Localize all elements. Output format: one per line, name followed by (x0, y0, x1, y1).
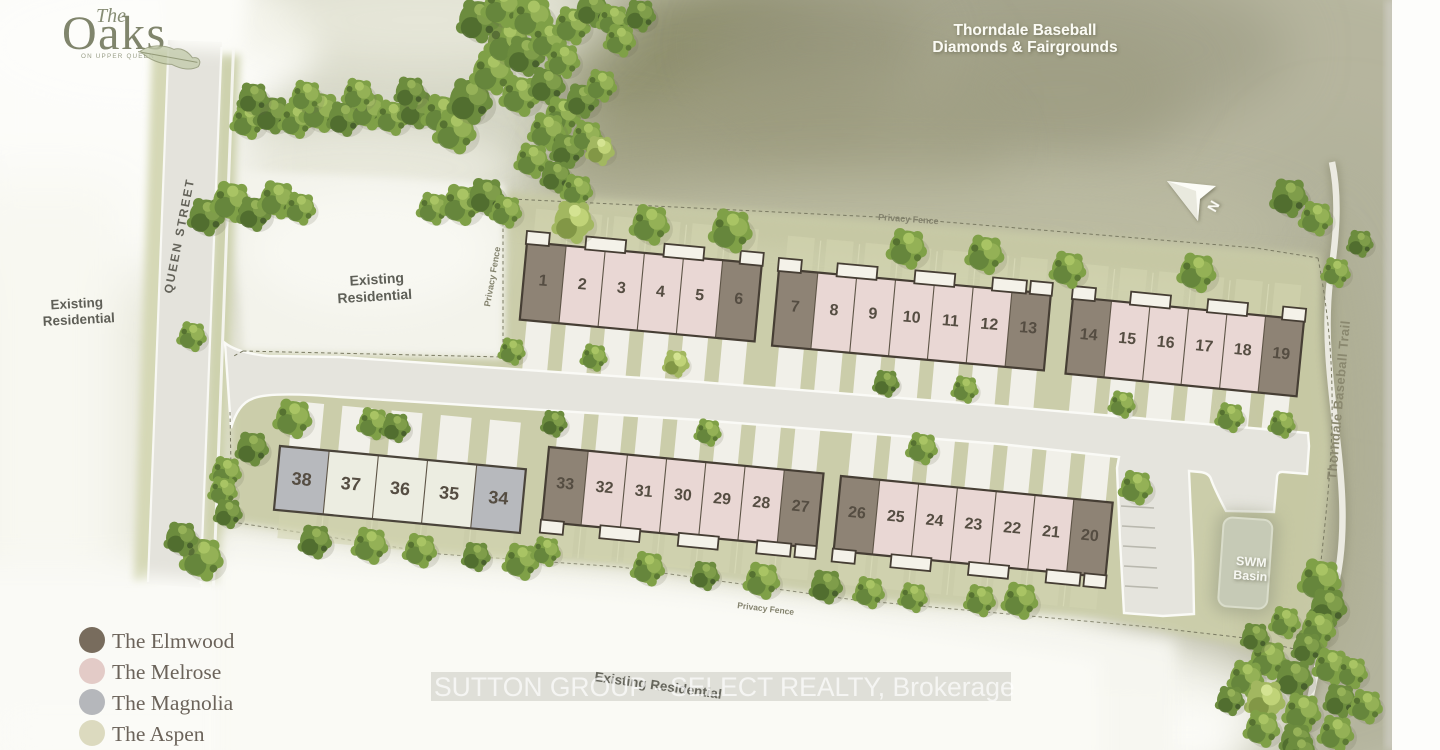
svg-text:25: 25 (886, 508, 905, 527)
svg-text:1: 1 (538, 272, 549, 290)
svg-text:20: 20 (1080, 527, 1099, 546)
svg-text:11: 11 (941, 312, 959, 330)
svg-text:21: 21 (1041, 523, 1060, 542)
svg-text:15: 15 (1117, 330, 1136, 349)
svg-text:18: 18 (1233, 341, 1252, 360)
svg-text:31: 31 (634, 482, 653, 501)
svg-text:SUTTON GROUP - SELECT REALTY,: SUTTON GROUP - SELECT REALTY, Brokerage (434, 672, 1015, 702)
svg-text:6: 6 (733, 290, 744, 308)
svg-text:5: 5 (694, 287, 705, 305)
svg-text:38: 38 (291, 468, 313, 490)
svg-text:26: 26 (847, 504, 866, 523)
svg-text:34: 34 (487, 487, 509, 509)
svg-text:32: 32 (595, 479, 614, 498)
svg-text:14: 14 (1079, 326, 1098, 345)
svg-text:24: 24 (925, 512, 944, 531)
svg-text:Existing: Existing (50, 295, 103, 313)
svg-text:The Magnolia: The Magnolia (112, 691, 234, 715)
svg-text:37: 37 (340, 473, 362, 495)
svg-text:35: 35 (438, 482, 460, 504)
svg-text:The Aspen: The Aspen (112, 722, 205, 746)
svg-text:9: 9 (868, 305, 879, 323)
svg-text:27: 27 (791, 498, 810, 517)
svg-text:13: 13 (1019, 319, 1038, 338)
svg-text:19: 19 (1272, 345, 1291, 364)
svg-text:36: 36 (389, 478, 411, 500)
svg-text:2: 2 (577, 276, 588, 294)
svg-text:4: 4 (655, 283, 666, 301)
svg-text:The Melrose: The Melrose (112, 660, 221, 684)
svg-text:17: 17 (1195, 337, 1214, 356)
svg-text:22: 22 (1003, 519, 1022, 538)
svg-text:8: 8 (829, 302, 840, 320)
svg-text:7: 7 (790, 298, 801, 316)
svg-text:3: 3 (616, 280, 627, 298)
svg-text:28: 28 (752, 494, 771, 513)
svg-text:16: 16 (1156, 333, 1175, 352)
svg-text:Thorndale Baseball: Thorndale Baseball (954, 22, 1097, 39)
svg-text:Diamonds & Fairgrounds: Diamonds & Fairgrounds (932, 39, 1117, 56)
svg-text:12: 12 (980, 316, 999, 335)
svg-text:Basin: Basin (1233, 568, 1268, 584)
svg-text:The Elmwood: The Elmwood (112, 629, 235, 653)
svg-text:33: 33 (556, 475, 575, 494)
svg-text:30: 30 (673, 486, 692, 505)
svg-text:29: 29 (712, 490, 731, 509)
svg-text:10: 10 (902, 308, 921, 327)
svg-text:23: 23 (964, 515, 983, 534)
